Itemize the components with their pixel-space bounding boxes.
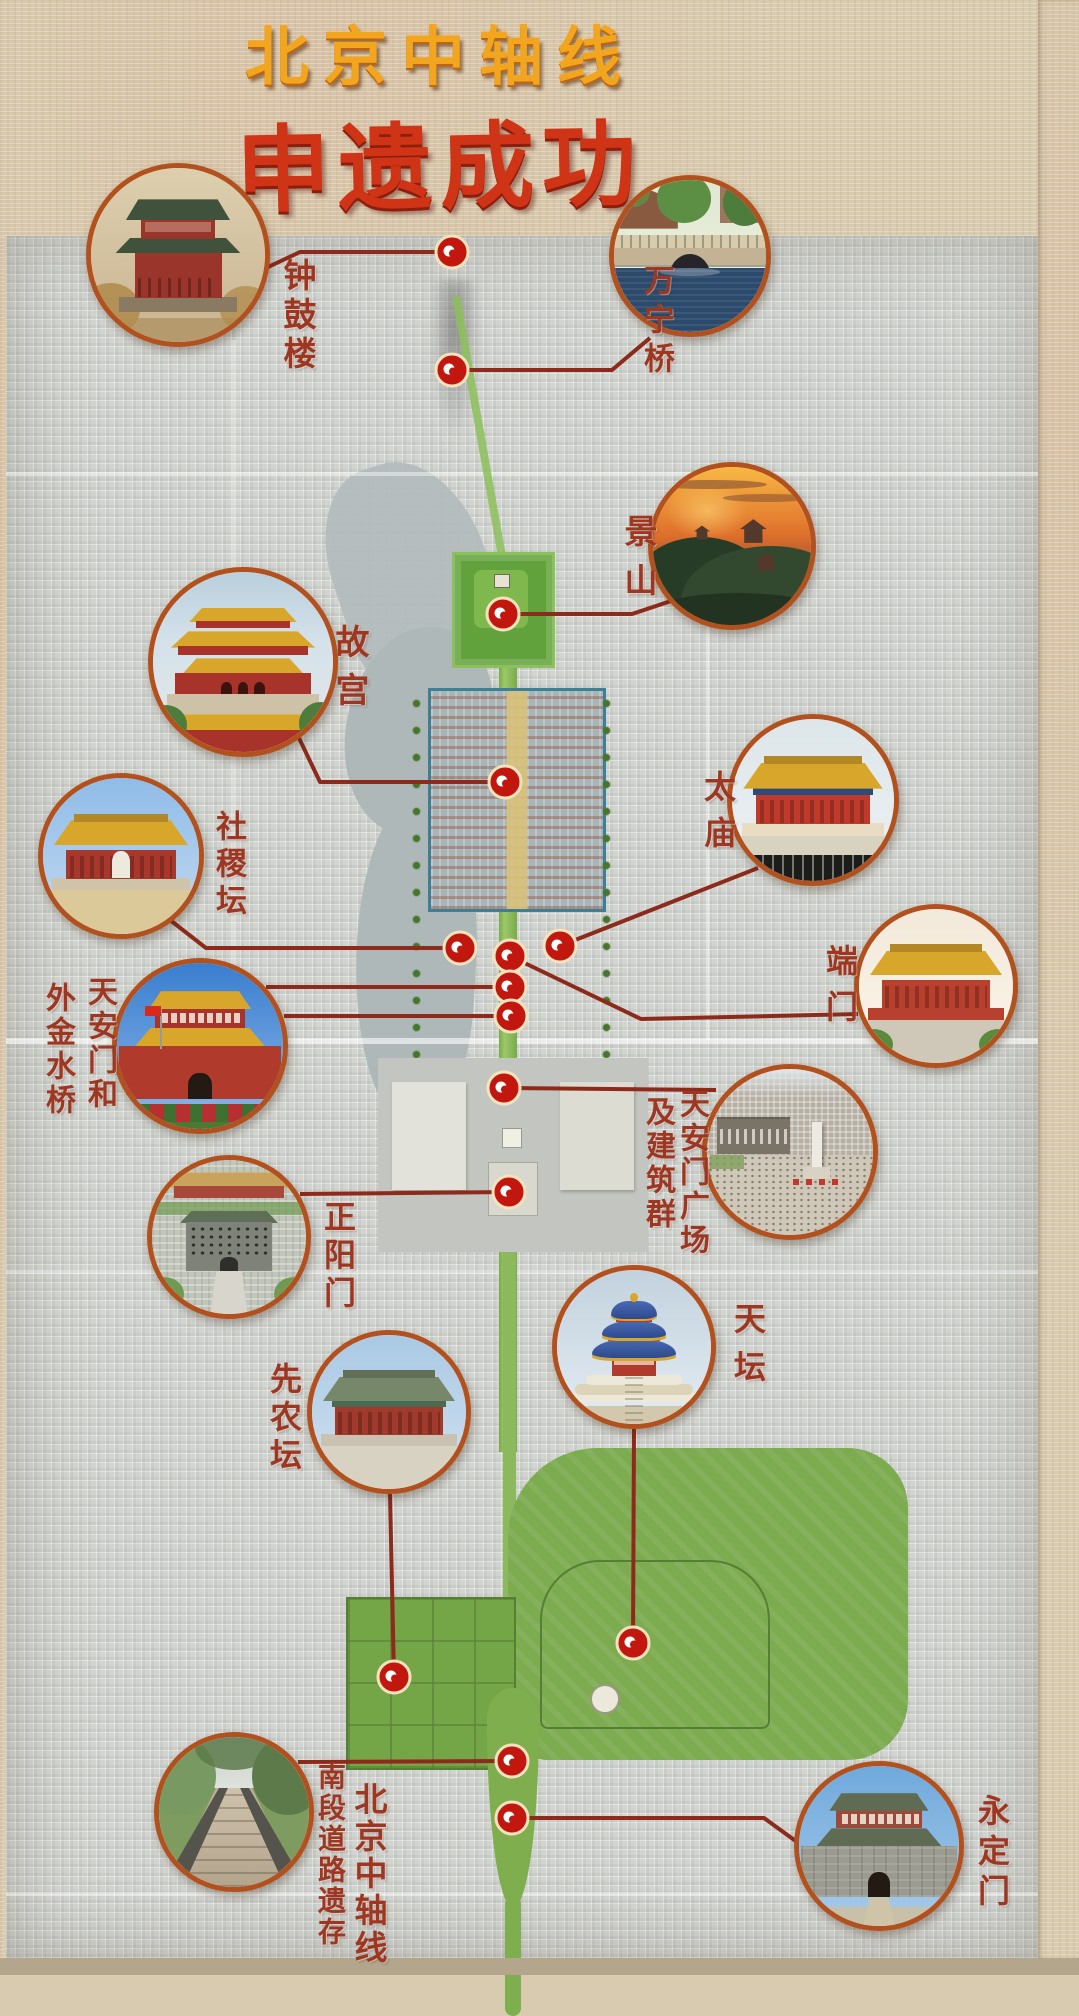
- photo-illustration-duanmen: [859, 909, 1013, 1063]
- site-photo-tiantan: [552, 1265, 716, 1429]
- site-label-tiananmen-jinshuiqiao-col1: 天安门和: [84, 976, 114, 1112]
- site-photo-zhengyangmen: [147, 1155, 311, 1319]
- site-label-jingshan: 景山: [622, 514, 655, 612]
- jingshan-pavilion: [494, 574, 510, 588]
- site-label-zhengyangmen: 正阳门: [322, 1200, 354, 1314]
- great-hall-of-people: [392, 1082, 466, 1190]
- paper-texture-right: [1038, 0, 1079, 1975]
- site-label-nanduan-daolu-col2: 南段道路遗存: [316, 1762, 344, 1948]
- site-photo-xiannongtan: [307, 1330, 471, 1494]
- site-photo-guangchang: [702, 1064, 878, 1240]
- site-label-shejitan: 社稷坛: [212, 810, 243, 921]
- tiantan-altar: [590, 1684, 620, 1714]
- site-label-yongdingmen: 永定门: [976, 1794, 1008, 1914]
- site-photo-wanningqiao: [609, 175, 771, 337]
- site-label-duanmen: 端门: [824, 944, 856, 1036]
- tiantan-inner-wall: [540, 1560, 770, 1729]
- site-label-guangchang-col1: 天安门广场: [676, 1088, 706, 1258]
- photo-illustration-zhonggulou: [91, 168, 265, 342]
- site-label-xiannongtan: 先农坛: [268, 1362, 300, 1476]
- photo-illustration-tiananmen-jinshuiqiao: [117, 963, 283, 1129]
- photo-illustration-nanduan-daolu: [159, 1737, 309, 1887]
- site-photo-zhonggulou: [86, 163, 270, 347]
- poster-root: 北京中轴线 申遗成功 钟鼓楼万宁桥景山故宫社稷坛太庙端门天安门和外金水桥天安门广…: [0, 0, 1079, 1975]
- photo-illustration-taimiao: [732, 719, 894, 881]
- site-label-tiantan: 天坛: [732, 1302, 764, 1398]
- photo-illustration-xiannongtan: [312, 1335, 466, 1489]
- site-label-tiananmen-jinshuiqiao-col2: 外金水桥: [42, 982, 72, 1118]
- photo-illustration-zhengyangmen: [152, 1160, 306, 1314]
- axis-south-teardrop: [487, 1688, 539, 1908]
- site-photo-yongdingmen: [794, 1761, 964, 1931]
- road-dianmen: [6, 472, 1038, 476]
- site-photo-shejitan: [38, 773, 204, 939]
- tree-row-west: [412, 690, 421, 1060]
- site-photo-tiananmen-jinshuiqiao: [112, 958, 288, 1134]
- site-label-gugong: 故宫: [332, 624, 366, 720]
- photo-illustration-gugong: [153, 572, 333, 752]
- site-label-taimiao: 太庙: [702, 770, 734, 862]
- paper-texture-bottom: [0, 1958, 1079, 1975]
- site-photo-gugong: [148, 567, 338, 757]
- site-photo-taimiao: [727, 714, 899, 886]
- paper-texture-left: [0, 236, 6, 1958]
- site-label-guangchang-col2: 及建筑群: [642, 1096, 672, 1232]
- national-museum: [560, 1082, 634, 1190]
- site-label-zhonggulou: 钟鼓楼: [281, 258, 314, 375]
- photo-illustration-jingshan: [653, 467, 811, 625]
- monument-heroes: [502, 1128, 522, 1148]
- photo-illustration-shejitan: [43, 778, 199, 934]
- photo-illustration-wanningqiao: [614, 180, 766, 332]
- site-label-wanningqiao: 万宁桥: [640, 264, 671, 381]
- site-photo-nanduan-daolu: [154, 1732, 314, 1892]
- mao-memorial-hall: [488, 1162, 538, 1216]
- site-label-nanduan-daolu-col1: 北京中轴线: [352, 1782, 385, 1967]
- tree-row-east: [602, 690, 611, 1060]
- photo-illustration-guangchang: [707, 1069, 873, 1235]
- site-photo-jingshan: [648, 462, 816, 630]
- forbidden-city-area: [428, 688, 606, 912]
- photo-illustration-yongdingmen: [799, 1766, 959, 1926]
- axis-south-tail: [505, 1896, 521, 2016]
- photo-illustration-tiantan: [557, 1270, 711, 1424]
- site-photo-duanmen: [854, 904, 1018, 1068]
